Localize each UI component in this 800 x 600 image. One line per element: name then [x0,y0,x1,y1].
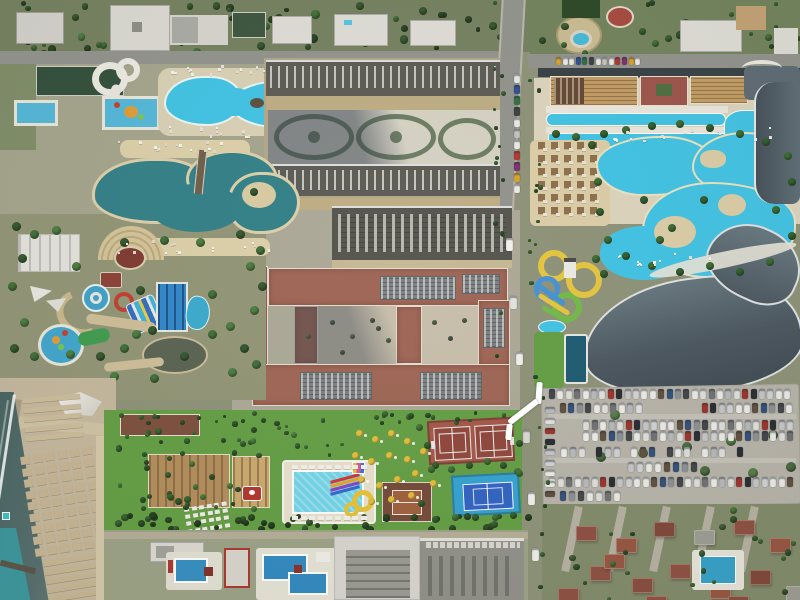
sunshade [29,513,39,522]
sunshade [569,187,573,190]
sunshade [79,505,89,514]
deck-slab [316,552,330,562]
sunshade [217,524,223,529]
sunshade [45,452,55,461]
tree [250,188,258,196]
hedge-block [562,0,600,18]
sunshade [225,523,231,528]
sunshade [595,187,599,190]
blue-court-service-box [473,487,504,506]
sunshade [556,187,560,190]
sunshade [81,517,91,526]
sunshade [54,509,64,518]
hotel-north-facade [266,96,500,110]
sunshade [70,530,80,539]
sunshade [595,200,599,203]
tree [534,243,537,246]
sunshade [194,520,200,525]
event-tents [18,234,80,272]
car [532,548,539,561]
sunshade [59,461,69,470]
aerial-resort-photo [0,0,800,600]
sunshade [84,540,94,549]
sunshade [33,536,43,545]
sunshade [27,502,37,511]
sunshade [569,148,573,151]
sunshade [70,448,80,457]
pool-island [700,150,726,168]
sunshade [556,148,560,151]
sunshade [595,148,599,151]
sunshade [72,459,82,468]
sunshade [186,522,192,527]
sunshade [86,469,96,478]
spiral-slide [90,292,102,304]
sunshade [215,510,221,515]
pool-kiosk [352,462,365,474]
play-structure [52,336,60,344]
sunshade [582,174,586,177]
tree [528,250,532,254]
sunshade [569,174,573,177]
play-structure [114,102,120,108]
sunshade [200,512,206,517]
parking-asphalt [541,384,800,508]
sunshade [26,490,36,499]
sunshade [42,511,52,520]
tree [528,239,531,242]
sunshade [50,486,60,495]
sunshade [84,457,94,466]
villa-building [16,12,64,44]
terrace-umbrellas [534,140,610,224]
sunshade [556,161,560,164]
small-pool [14,100,58,126]
sunshade [543,213,547,216]
sunshade [43,523,53,532]
infinity-pool [546,113,726,126]
sunshade [184,507,190,512]
slide-tower [564,258,576,278]
rooftop-units [270,170,496,190]
sunshade [569,161,573,164]
resort-lawn [534,332,564,388]
sunshade [222,508,228,513]
rooftop-hvac [300,372,372,400]
pool-island [718,194,746,216]
play-structure [58,344,64,350]
blue-tennis-court [451,472,521,517]
sunshade [82,446,92,455]
play-structure [124,106,138,118]
sunshade [214,503,220,508]
sunshade [582,200,586,203]
sunshade [45,534,55,543]
sunshade [56,521,66,530]
sunshade [75,482,85,491]
tree [528,79,531,82]
sunshade [40,500,50,509]
roof-panels [346,550,410,598]
sunshade [185,514,191,519]
car [528,492,535,505]
swim-up-bar [250,98,264,108]
sunshade [77,494,87,503]
red-structure [168,560,173,573]
sunshade [206,504,212,509]
sunshade [57,450,67,459]
pergola-dark-section [554,78,584,104]
amphitheatre-stage [114,246,146,270]
pergola-building [690,76,748,104]
white-building [680,20,742,52]
sunshade [209,518,215,523]
red-structure [294,565,302,573]
beach-lounges [20,391,88,446]
parking-lane [548,414,796,419]
parking-lane [548,458,796,463]
flat-roof-villa [410,20,456,46]
lap-pool [156,282,188,332]
sunshade [68,519,78,528]
rooftop-units [270,66,496,88]
sunshade [58,532,68,541]
sport-court-line [392,502,422,503]
sunshade [33,454,43,463]
red-structure [204,567,213,576]
hotel-pool [288,572,328,595]
pool-island [654,216,696,248]
sunshade [61,473,71,482]
pond [142,336,208,374]
orchard-building [148,454,230,508]
sunshade [207,511,213,516]
sunshade [199,505,205,510]
sunshade [543,200,547,203]
sunshade [201,519,207,524]
sunshade [543,187,547,190]
tree [525,514,532,521]
sunshade [22,394,80,404]
modern-tower [754,82,800,204]
sunshade [582,161,586,164]
sunshade [543,148,547,151]
sunshade [192,513,198,518]
freeform-pool [212,88,252,116]
sunshade [216,517,222,522]
pool-deck-strip [546,106,728,113]
rooftop-hvac [420,372,482,400]
sunshade [20,456,30,465]
sunshade [36,477,46,486]
sunshade [73,471,83,480]
sunshade [582,213,586,216]
play-structure [138,114,144,120]
white-roof-arc [742,60,782,76]
sunshade [23,403,81,413]
white-building [774,28,798,54]
lifeguard-kiosk [2,512,10,520]
sunshade [24,413,82,423]
tree [529,281,534,286]
sunshade [72,542,82,551]
sunshade [556,213,560,216]
courtyard-garden [656,84,672,96]
sunshade [224,516,230,521]
sunshade [38,488,48,497]
villa-tower [132,22,142,32]
tree [529,282,532,285]
sunshade [543,161,547,164]
waterslide-loop [116,58,140,82]
sunshade [569,200,573,203]
car [523,430,530,443]
lake-island [242,182,276,208]
sunshade [582,148,586,151]
tan-building [736,6,766,30]
rooftop-pool [344,20,352,25]
sunshade [34,465,44,474]
sunshade [65,496,75,505]
sunshade [556,200,560,203]
sunshade [22,467,32,476]
sunshade [59,544,69,553]
sunshade [83,528,93,537]
roof-rows [428,556,516,596]
dark-lap-pool [564,334,588,384]
sunshade [47,463,57,472]
clay-tennis-courts [427,417,515,465]
hotel-pool [174,558,208,583]
flat-roof-villa [334,14,388,46]
sunshade [543,174,547,177]
green-roof-villa [232,12,266,38]
facade-strip [332,260,512,268]
court-bench [431,441,435,449]
flat-roof-villa [272,16,312,44]
sunshade [191,506,197,511]
red-frame-building [224,548,250,588]
tree [592,255,600,263]
sunshade [35,547,45,556]
sunshade [31,525,41,534]
sunshade [221,501,227,506]
rooftop-hvac [380,276,456,300]
red-pavilion [606,6,634,28]
villa-quarter-ground [542,504,800,600]
red-feature-center [249,490,255,495]
sunshade [556,174,560,177]
beach-bar-building [120,414,200,436]
sunshade [66,507,76,516]
sunshade [569,213,573,216]
rooftop-units [338,214,506,252]
villa-roof-section [172,17,198,43]
sunshade [25,422,83,432]
villa-pool [700,556,736,584]
play-structure [62,330,68,336]
sunshade [595,213,599,216]
sunshade [52,498,62,507]
rooftop-hvac [462,274,500,294]
courtyard-shadow [268,110,500,164]
spiral-slide-yellow [344,502,359,517]
courtyard-shadow [294,306,478,364]
roof-edge-units [424,542,520,548]
sunshade [47,546,57,555]
sunshade [25,432,83,442]
sunshade [49,475,59,484]
sunshade [582,187,586,190]
rooftop-hvac [483,308,505,348]
round-pool [570,30,592,48]
sunshade [24,479,34,488]
sunshade [63,484,73,493]
